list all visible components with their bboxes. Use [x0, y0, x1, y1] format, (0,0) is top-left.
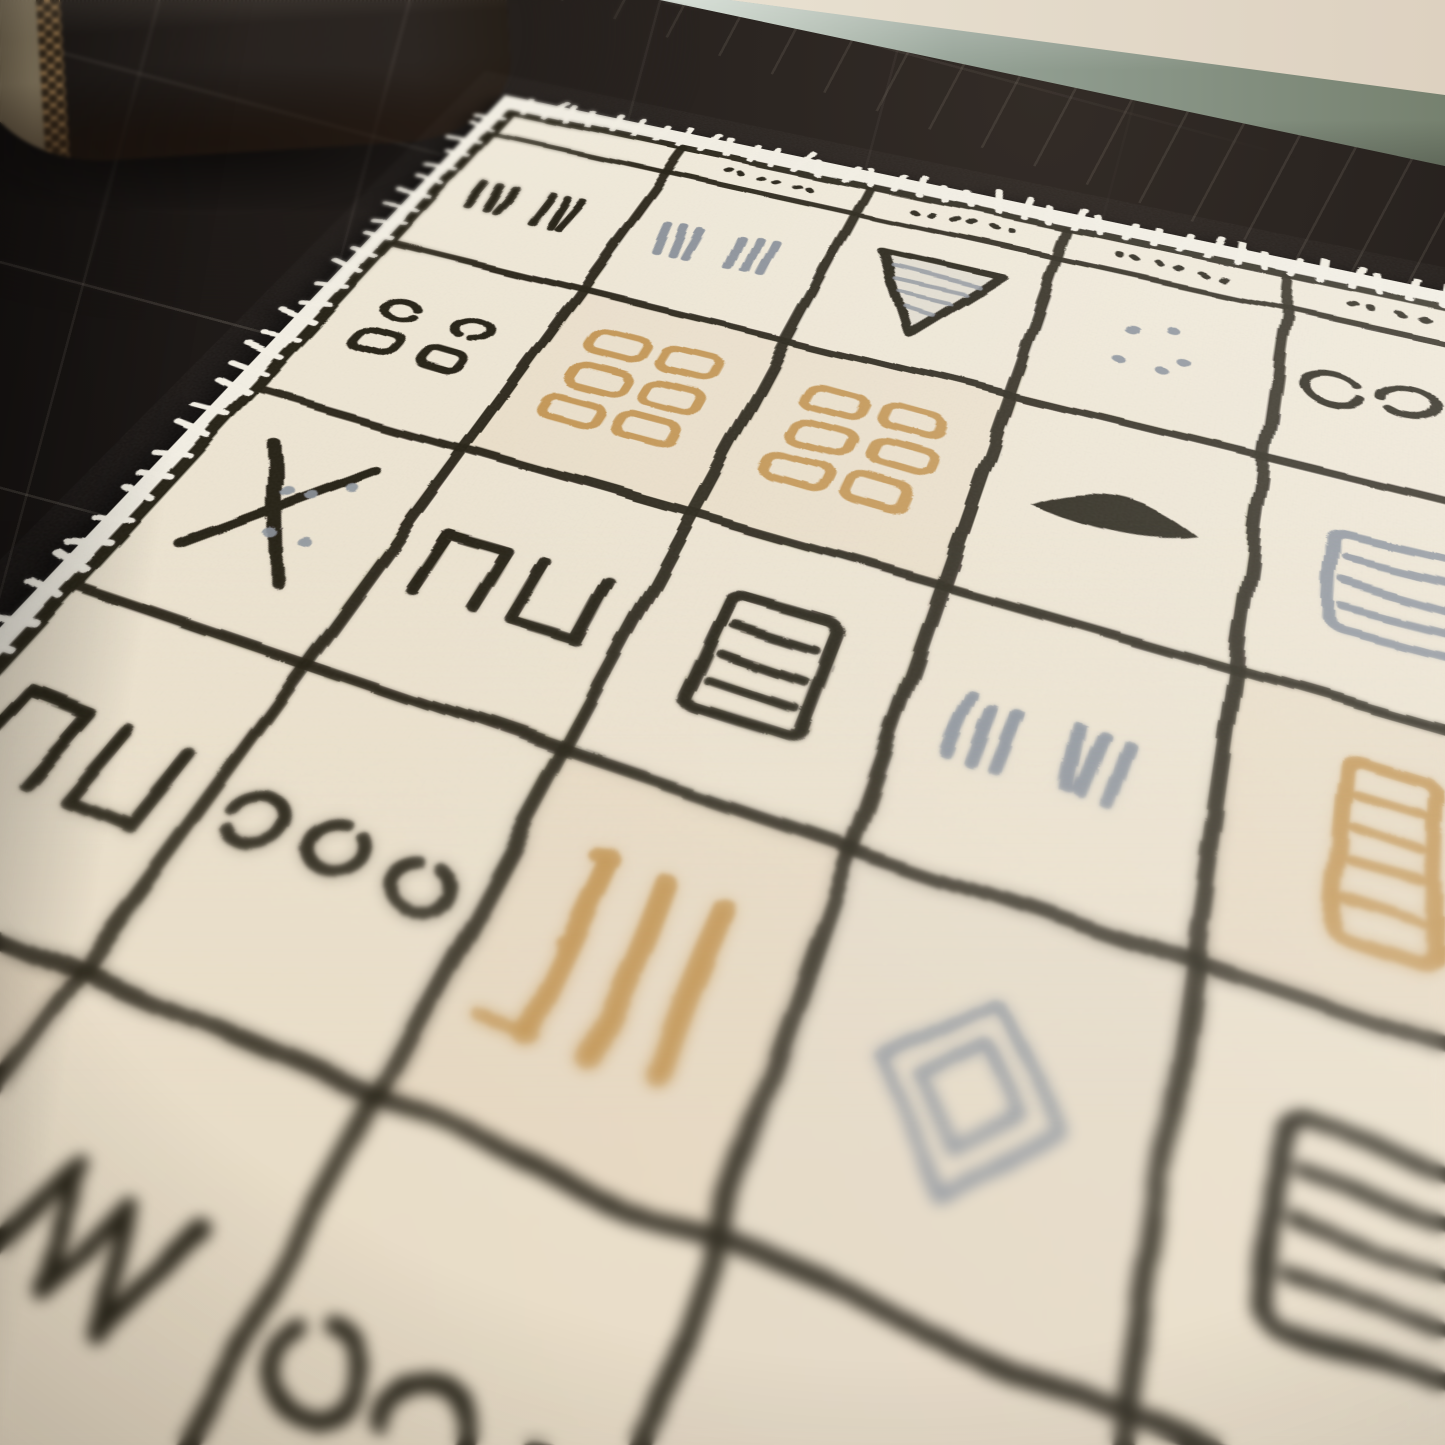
photo-frame [0, 0, 1445, 1445]
